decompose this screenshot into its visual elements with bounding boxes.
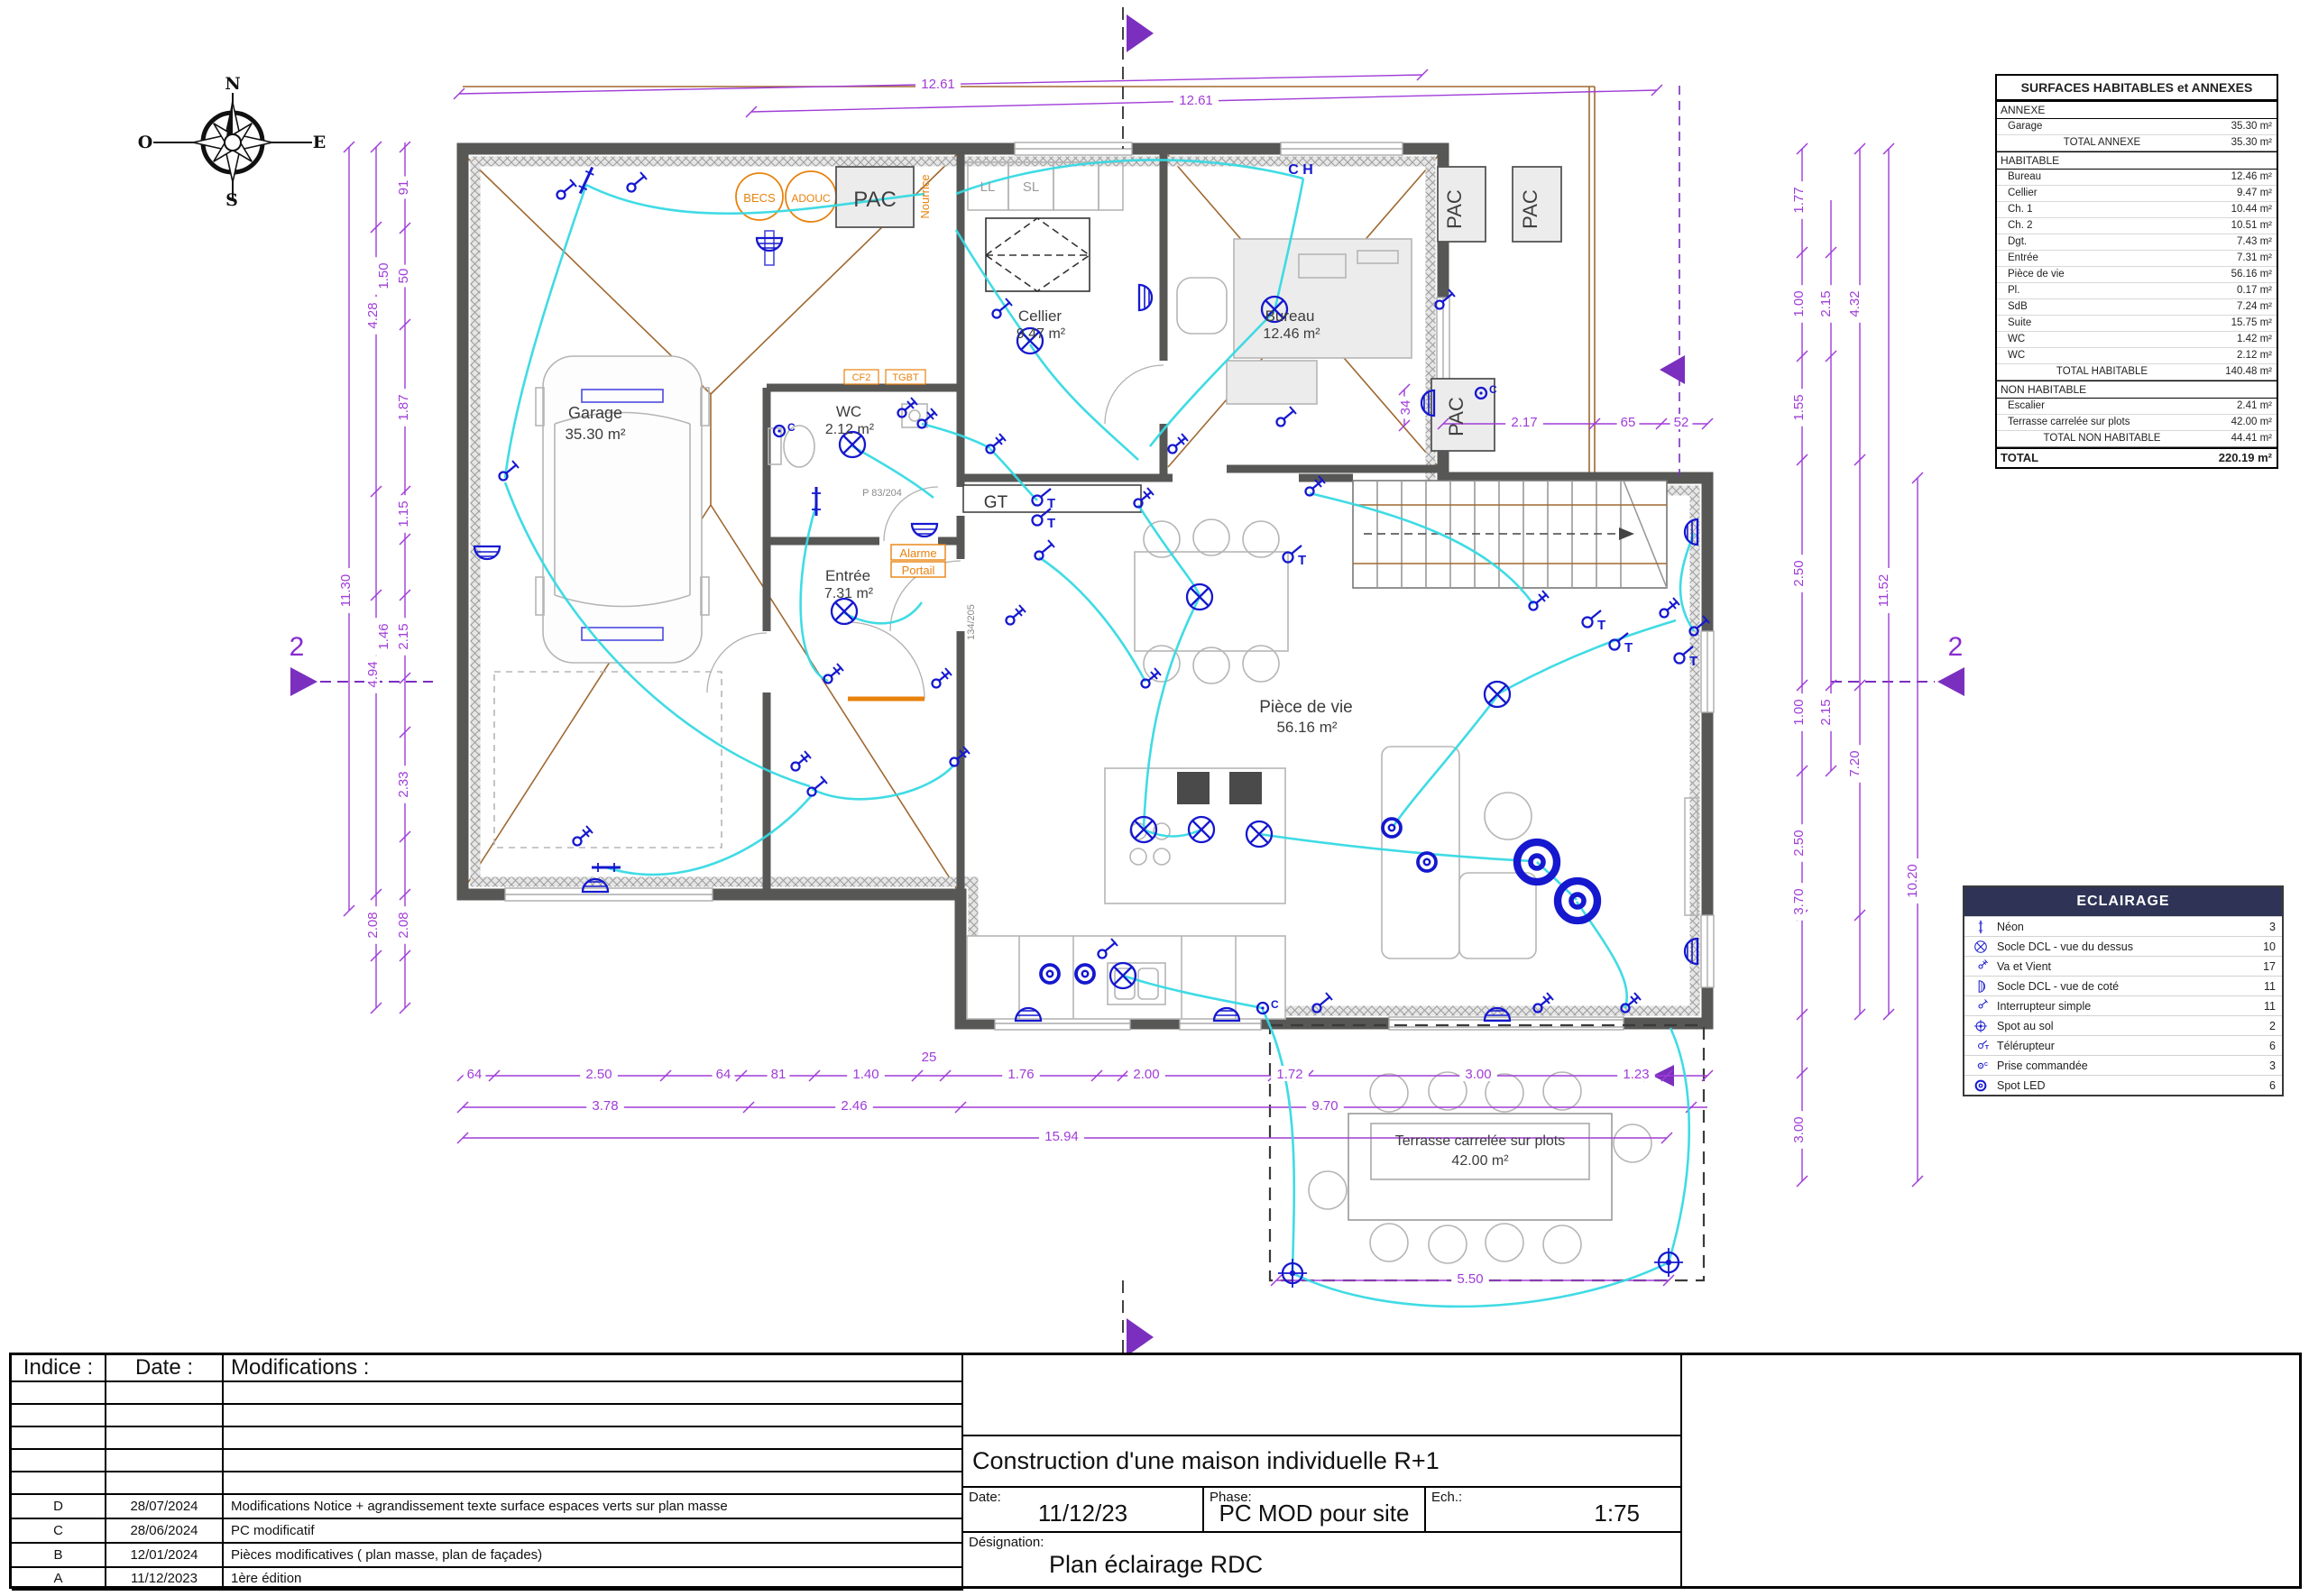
revision-cell	[224, 1450, 963, 1472]
surface-name: Pièce de vie	[1997, 267, 2207, 282]
svg-text:1.23: 1.23	[1623, 1067, 1649, 1082]
svg-text:2.50: 2.50	[1791, 560, 1807, 586]
legend-row: Socle DCL - vue du dessus10	[1964, 936, 2282, 956]
surface-value: 7.24 m²	[2207, 299, 2277, 315]
surface-name: Pl.	[1997, 283, 2207, 298]
plan-text: 134/205	[966, 604, 977, 640]
revision-cell: 28/06/2024	[106, 1519, 224, 1544]
symbol-vv	[1530, 591, 1550, 610]
svg-text:50: 50	[396, 269, 411, 284]
dimension-label: 2.15	[1817, 693, 1834, 731]
dimension-label: 1.55	[1790, 389, 1807, 427]
svg-text:1.00: 1.00	[1791, 290, 1807, 316]
svg-text:T: T	[1597, 618, 1605, 633]
svg-text:3.78: 3.78	[592, 1098, 618, 1114]
dimension-lines	[349, 75, 1918, 1280]
svg-text:1.55: 1.55	[1791, 394, 1807, 420]
surface-value: 9.47 m²	[2207, 186, 2277, 201]
grand-total-value: 220.19 m²	[2207, 449, 2277, 467]
plan-text: PAC	[853, 188, 897, 212]
grand-total-name: TOTAL	[1997, 449, 2207, 467]
revision-cell: Pièces modificatives ( plan masse, plan …	[224, 1544, 963, 1568]
plan-text: Entrée	[825, 567, 870, 584]
plan-text: 2.12 m²	[825, 422, 875, 437]
dimension-label: 2.00	[1127, 1066, 1165, 1082]
legend-label: Néon	[1997, 921, 2250, 933]
plan-text: Nourrice	[918, 174, 932, 218]
dimension-label: 52	[1670, 414, 1693, 430]
plan-text: E	[313, 133, 326, 152]
svg-text:2.46: 2.46	[841, 1098, 867, 1114]
svg-text:T: T	[1689, 654, 1697, 669]
dimension-label: 3.78	[586, 1097, 624, 1114]
symbol-inter	[1277, 407, 1297, 427]
svg-text:64: 64	[467, 1067, 483, 1082]
surfaces-total-row: TOTAL NON HABITABLE44.41 m²	[1997, 431, 2277, 447]
svg-text:C: C	[1489, 383, 1497, 396]
symbol-dcl-side	[912, 524, 937, 537]
lighting-legend: ECLAIRAGE Néon3Socle DCL - vue du dessus…	[1963, 885, 2284, 1096]
plan-text: ADOUC	[791, 192, 831, 205]
legend-label: Prise commandée	[1997, 1059, 2250, 1072]
surface-name: Ch. 1	[1997, 202, 2207, 217]
spot-sol-icon	[1964, 1017, 1997, 1035]
svg-text:25: 25	[922, 1050, 937, 1065]
svg-text:9.70: 9.70	[1311, 1098, 1338, 1114]
legend-count: 2	[2250, 1020, 2282, 1032]
surface-name: Suite	[1997, 316, 2207, 331]
symbol-spot-sol	[1654, 1248, 1683, 1277]
date-value: 11/12/23	[963, 1500, 1202, 1527]
dimension-label: 2.33	[395, 766, 411, 803]
svg-text:C: C	[1271, 998, 1279, 1011]
designation-label: Désignation:	[969, 1535, 1044, 1550]
svg-text:65: 65	[1621, 415, 1636, 430]
plan-text: Pièce de vie	[1259, 698, 1353, 717]
legend-row: Spot LED6	[1964, 1075, 2282, 1095]
dimension-label: 2.17	[1505, 414, 1543, 430]
symbol-vv	[898, 398, 918, 417]
plan-text: Cellier	[1018, 307, 1063, 325]
surface-name: Dgt.	[1997, 234, 2207, 250]
dcl-side-icon	[1964, 977, 1997, 995]
svg-text:10.20: 10.20	[1905, 864, 1920, 898]
plan-text: 42.00 m²	[1451, 1153, 1509, 1169]
surface-value: 35.30 m²	[2207, 119, 2277, 134]
symbol-inter	[557, 179, 577, 199]
revision-cell: Modifications :	[224, 1355, 963, 1382]
revision-cell	[224, 1427, 963, 1450]
svg-text:1.72: 1.72	[1276, 1067, 1302, 1082]
neon-icon	[1964, 918, 1997, 936]
symbol-vv	[574, 826, 593, 846]
svg-text:1.15: 1.15	[396, 500, 411, 527]
designation-value: Plan éclairage RDC	[963, 1551, 1680, 1579]
title-block: Indice :Date :Modifications :D28/07/2024…	[9, 1353, 2302, 1589]
surface-name: Cellier	[1997, 186, 2207, 201]
dimension-label: 64	[464, 1066, 486, 1082]
plan-text: TGBT	[892, 372, 919, 383]
dimension-label: 1.00	[1790, 285, 1807, 323]
surfaces-row: Bureau12.46 m²	[1997, 170, 2277, 186]
svg-text:T: T	[1047, 516, 1055, 531]
dimension-label: 81	[768, 1066, 790, 1082]
svg-text:3.70: 3.70	[1791, 888, 1807, 914]
dimension-label: 12.61	[915, 76, 961, 92]
dcl-top-icon	[1964, 938, 1997, 956]
plan-text: 7.31 m²	[824, 586, 874, 601]
surfaces-row: Entrée7.31 m²	[1997, 251, 2277, 267]
surface-name: Garage	[1997, 119, 2207, 134]
revision-table: Indice :Date :Modifications :D28/07/2024…	[12, 1355, 963, 1586]
svg-text:3.00: 3.00	[1465, 1067, 1491, 1082]
symbol-led	[1558, 881, 1597, 921]
revision-cell: C	[12, 1519, 106, 1544]
plan-text: Alarme	[899, 546, 936, 560]
symbol-spot-sol	[1278, 1259, 1307, 1288]
symbol-dcl-top	[832, 599, 857, 624]
surfaces-row: WC1.42 m²	[1997, 332, 2277, 348]
surfaces-section-header: ANNEXE	[1997, 101, 2277, 119]
dimension-label: 4.94	[364, 656, 381, 693]
surfaces-total-name: TOTAL ANNEXE	[1997, 135, 2207, 151]
revision-cell: D	[12, 1495, 106, 1519]
revision-cell	[224, 1472, 963, 1495]
plan-text: S	[225, 190, 238, 210]
surface-value: 56.16 m²	[2207, 267, 2277, 282]
svg-text:2.15: 2.15	[1818, 699, 1834, 725]
legend-row: Va et Vient17	[1964, 956, 2282, 976]
dimension-label: 2.08	[395, 906, 411, 944]
surfaces-total-value: 44.41 m²	[2207, 431, 2277, 446]
furniture	[494, 162, 1704, 1280]
revision-cell: B	[12, 1544, 106, 1568]
dimension-label: 3.00	[1459, 1066, 1497, 1082]
dimension-label: 4.28	[364, 297, 381, 335]
plan-text: 12.46 m²	[1263, 326, 1320, 342]
plan-text: Bureau	[1265, 307, 1315, 325]
symbol-dcl-top	[1485, 682, 1510, 707]
surfaces-total-row: TOTAL ANNEXE35.30 m²	[1997, 135, 2277, 151]
dimension-label: 91	[395, 177, 411, 199]
surfaces-total-row: TOTAL HABITABLE140.48 m²	[1997, 364, 2277, 381]
svg-text:2.50: 2.50	[585, 1067, 612, 1082]
surfaces-row: Pl.0.17 m²	[1997, 283, 2277, 299]
dimension-label: 2.46	[835, 1097, 873, 1114]
dimension-label: 1.46	[375, 618, 391, 656]
revision-cell	[12, 1405, 106, 1427]
symbol-inter	[628, 172, 648, 192]
tele-icon: T	[1964, 1037, 1997, 1055]
revision-cell: A	[12, 1568, 106, 1591]
svg-text:2.50: 2.50	[1791, 830, 1807, 856]
svg-text:3.00: 3.00	[1791, 1116, 1807, 1142]
legend-count: 11	[2250, 1000, 2282, 1013]
revision-cell	[106, 1472, 224, 1495]
plan-text: SL	[1023, 179, 1039, 195]
surface-value: 0.17 m²	[2207, 283, 2277, 298]
dimension-label: 12.61	[1173, 92, 1219, 108]
svg-text:2.08: 2.08	[365, 912, 381, 938]
plan-text: GT	[984, 493, 1008, 512]
plan-text: LL	[980, 179, 996, 195]
dimension-label: 9.70	[1306, 1097, 1344, 1114]
plan-text: N	[225, 74, 240, 94]
prise-icon: C	[1964, 1057, 1997, 1075]
dimension-label: 7.20	[1846, 745, 1863, 783]
dimension-label: 34	[1397, 397, 1413, 419]
revision-cell	[12, 1382, 106, 1405]
legend-count: 17	[2250, 960, 2282, 973]
dimension-label: 2.50	[1790, 555, 1807, 592]
revision-cell: Date :	[106, 1355, 224, 1382]
revision-cell: PC modificatif	[224, 1519, 963, 1544]
dimension-label: 2.15	[395, 618, 411, 656]
legend-row: Spot au sol2	[1964, 1015, 2282, 1035]
title-block-center: Construction d'une maison individuelle R…	[963, 1355, 1682, 1586]
legend-label: Va et Vient	[1997, 960, 2250, 973]
symbol-inter	[1035, 540, 1055, 560]
surface-value: 7.31 m²	[2207, 251, 2277, 266]
dimension-label: 1.15	[395, 495, 411, 533]
compass-rose	[153, 93, 312, 198]
svg-text:1.76: 1.76	[1007, 1067, 1034, 1082]
symbol-tele: T	[1583, 610, 1606, 633]
svg-text:T: T	[1298, 553, 1306, 568]
svg-text:4.32: 4.32	[1847, 290, 1863, 316]
svg-text:4.28: 4.28	[365, 302, 381, 328]
svg-text:2.33: 2.33	[396, 771, 411, 797]
surfaces-total-name: TOTAL HABITABLE	[1997, 364, 2207, 380]
phase-value: PC MOD pour site	[1204, 1500, 1424, 1527]
logo-area	[1682, 1355, 2302, 1586]
legend-count: 10	[2250, 940, 2282, 953]
surface-value: 42.00 m²	[2207, 415, 2277, 430]
svg-text:91: 91	[396, 180, 411, 196]
dimension-label: 4.32	[1846, 285, 1863, 323]
legend-count: 3	[2250, 921, 2282, 933]
symbol-dcl-side	[757, 238, 782, 251]
surface-value: 1.42 m²	[2207, 332, 2277, 347]
svg-text:1.46: 1.46	[376, 623, 391, 649]
surface-value: 12.46 m²	[2207, 170, 2277, 185]
svg-text:4.94: 4.94	[365, 661, 381, 687]
plan-text: CF2	[852, 372, 871, 383]
svg-text:T: T	[1047, 496, 1055, 511]
dimension-label: 2.08	[364, 906, 381, 944]
surfaces-row: Ch. 110.44 m²	[1997, 202, 2277, 218]
plan-text: C H	[1288, 162, 1313, 178]
revision-cell: 28/07/2024	[106, 1495, 224, 1519]
dimension-labels: 12.6112.61642.5064811.40251.762.001.723.…	[337, 76, 1920, 1287]
dimension-label: 1.77	[1790, 181, 1807, 219]
revision-cell	[12, 1450, 106, 1472]
surfaces-row: Pièce de vie56.16 m²	[1997, 267, 2277, 283]
surface-name: Escalier	[1997, 399, 2207, 414]
surfaces-row: Terrasse carrelée sur plots42.00 m²	[1997, 415, 2277, 431]
surface-name: WC	[1997, 332, 2207, 347]
dimension-ticks	[344, 69, 1923, 1286]
revision-cell	[106, 1382, 224, 1405]
legend-row: Socle DCL - vue de coté11	[1964, 976, 2282, 995]
plan-text: 2	[1948, 632, 1964, 662]
dimension-label: 1.76	[1002, 1066, 1040, 1082]
revision-cell	[224, 1405, 963, 1427]
surfaces-section-header: NON HABITABLE	[1997, 381, 2277, 399]
svg-text:1.87: 1.87	[396, 394, 411, 420]
dimension-label: 65	[1617, 414, 1640, 430]
svg-text:2.17: 2.17	[1511, 415, 1537, 430]
surfaces-row: Escalier2.41 m²	[1997, 399, 2277, 415]
dimension-label: 1.87	[395, 389, 411, 427]
plan-text: PAC	[1443, 189, 1466, 229]
surfaces-section-header: HABITABLE	[1997, 151, 2277, 170]
surfaces-total-value: 35.30 m²	[2207, 135, 2277, 151]
designation-cell: Désignation: Plan éclairage RDC	[963, 1531, 1680, 1586]
symbol-neon	[576, 165, 597, 195]
svg-text:81: 81	[771, 1067, 787, 1082]
revision-cell	[12, 1472, 106, 1495]
svg-text:T: T	[1985, 1044, 1990, 1050]
dimension-label: 50	[395, 265, 411, 288]
surface-value: 7.43 m²	[2207, 234, 2277, 250]
led-icon	[1964, 1077, 1997, 1095]
symbol-vv	[1660, 598, 1680, 618]
dimension-label: 1.50	[375, 257, 391, 295]
svg-text:C: C	[787, 421, 796, 434]
svg-text:15.94: 15.94	[1044, 1129, 1079, 1144]
plan-text: Garage	[568, 404, 622, 422]
legend-label: Télérupteur	[1997, 1040, 2250, 1052]
surfaces-row: Cellier9.47 m²	[1997, 186, 2277, 202]
dimension-label: 3.00	[1790, 1111, 1807, 1149]
legend-label: Spot au sol	[1997, 1020, 2250, 1032]
surfaces-table: SURFACES HABITABLES et ANNEXES ANNEXEGar…	[1995, 74, 2278, 469]
scale-value: 1:75	[1426, 1500, 1680, 1527]
surfaces-row: Ch. 210.51 m²	[1997, 218, 2277, 234]
surfaces-row: SdB7.24 m²	[1997, 299, 2277, 316]
surface-value: 10.44 m²	[2207, 202, 2277, 217]
symbol-vv	[987, 434, 1007, 454]
symbol-vv	[1007, 605, 1026, 625]
plan-text: PAC	[1519, 189, 1541, 229]
plan-text: O	[138, 133, 153, 152]
date-cell: Date: 11/12/23	[963, 1488, 1204, 1531]
dimension-label: 10.20	[1904, 858, 1920, 903]
dimension-label: 11.52	[1875, 568, 1891, 613]
inter-icon	[1964, 997, 1997, 1015]
revision-cell: Modifications Notice + agrandissement te…	[224, 1495, 963, 1519]
plan-text: PAC	[1445, 397, 1467, 436]
revision-cell	[224, 1382, 963, 1405]
legend-count: 11	[2250, 980, 2282, 993]
svg-text:34: 34	[1398, 400, 1413, 416]
revision-cell	[106, 1405, 224, 1427]
surfaces-table-title: SURFACES HABITABLES et ANNEXES	[1997, 76, 2277, 101]
project-title: Construction d'une maison individuelle R…	[963, 1435, 1680, 1486]
plan-text: Terrasse carrelée sur plots	[1395, 1133, 1566, 1149]
revision-cell: 1ère édition	[224, 1568, 963, 1591]
plan-text: Portail	[902, 564, 935, 577]
plan-text: WC	[836, 403, 861, 420]
svg-text:64: 64	[716, 1067, 731, 1082]
dimension-label: 2.50	[580, 1066, 618, 1082]
surface-value: 2.41 m²	[2207, 399, 2277, 414]
revision-cell: 11/12/2023	[106, 1568, 224, 1591]
revision-cell: Indice :	[12, 1355, 106, 1382]
svg-text:2.15: 2.15	[396, 623, 411, 649]
plan-sheet: { "surfaces_table": { "title": "SURFACES…	[0, 0, 2309, 1596]
svg-text:1.77: 1.77	[1791, 187, 1807, 213]
surface-name: Terrasse carrelée sur plots	[1997, 415, 2207, 430]
svg-text:1.00: 1.00	[1791, 699, 1807, 725]
lighting-legend-title: ECLAIRAGE	[1964, 887, 2282, 916]
legend-row: Interrupteur simple11	[1964, 995, 2282, 1015]
plan-text: 35.30 m²	[565, 426, 625, 443]
svg-text:1.40: 1.40	[852, 1067, 879, 1082]
vv-icon	[1964, 958, 1997, 976]
phase-cell: Phase: PC MOD pour site	[1204, 1488, 1426, 1531]
revision-cell	[106, 1450, 224, 1472]
dimension-label: 3.70	[1790, 883, 1807, 921]
svg-text:7.20: 7.20	[1847, 750, 1863, 776]
svg-text:52: 52	[1674, 415, 1689, 430]
dimension-label: 64	[713, 1066, 735, 1082]
surfaces-grand-total: TOTAL220.19 m²	[1997, 447, 2277, 467]
surfaces-row: Dgt.7.43 m²	[1997, 234, 2277, 251]
svg-text:11.52: 11.52	[1876, 574, 1891, 607]
surface-name: WC	[1997, 348, 2207, 363]
svg-text:2.15: 2.15	[1818, 290, 1834, 316]
plan-text: 9.47 m²	[1017, 326, 1066, 342]
dimension-label: 15.94	[1039, 1128, 1084, 1144]
surfaces-row: Suite15.75 m²	[1997, 316, 2277, 332]
dimension-label: 2.15	[1817, 285, 1834, 323]
svg-text:2.08: 2.08	[396, 912, 411, 938]
svg-text:T: T	[1624, 640, 1633, 656]
dimension-label: 1.00	[1790, 693, 1807, 731]
plan-text: P 83/204	[862, 488, 902, 499]
surfaces-total-value: 140.48 m²	[2207, 364, 2277, 380]
dimension-label: 5.50	[1451, 1270, 1489, 1287]
symbol-inter	[500, 461, 520, 481]
svg-text:1.50: 1.50	[376, 262, 391, 289]
symbol-vv	[792, 751, 812, 771]
symbol-dcl-side	[1139, 285, 1152, 310]
plan-text: 56.16 m²	[1276, 719, 1337, 736]
symbol-vv	[1169, 434, 1189, 454]
surface-name: SdB	[1997, 299, 2207, 315]
surface-value: 2.12 m²	[2207, 348, 2277, 363]
revision-cell	[12, 1427, 106, 1450]
legend-count: 6	[2250, 1079, 2282, 1092]
surfaces-row: Garage35.30 m²	[1997, 119, 2277, 135]
revision-cell: 12/01/2024	[106, 1544, 224, 1568]
dimension-label: 25	[918, 1049, 941, 1065]
dimension-label: 1.23	[1617, 1066, 1655, 1082]
legend-row: TTélérupteur6	[1964, 1035, 2282, 1055]
plan-text: BECS	[743, 191, 776, 205]
svg-text:5.50: 5.50	[1457, 1271, 1483, 1287]
svg-text:12.61: 12.61	[1179, 93, 1213, 108]
svg-text:11.30: 11.30	[338, 574, 354, 607]
dimension-label: 1.72	[1271, 1066, 1309, 1082]
symbol-vv	[933, 668, 952, 688]
legend-label: Socle DCL - vue de coté	[1997, 980, 2250, 993]
dimension-label: 2.50	[1790, 824, 1807, 862]
surfaces-total-name: TOTAL NON HABITABLE	[1997, 431, 2207, 446]
legend-label: Spot LED	[1997, 1079, 2250, 1092]
